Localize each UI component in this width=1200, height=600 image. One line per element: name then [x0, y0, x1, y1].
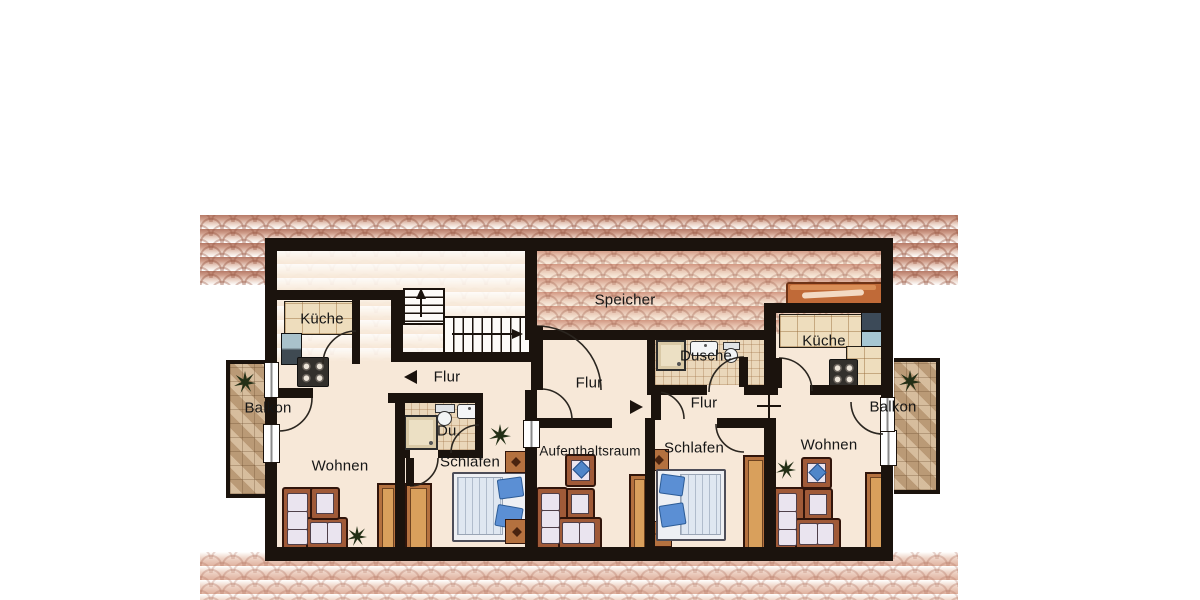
- door-arc-icon: [657, 392, 684, 419]
- room-label-schlafen-left: Schlafen: [440, 455, 500, 470]
- room-label-flur-left: Flur: [434, 370, 461, 385]
- room-label-kueche-left: Küche: [300, 312, 344, 327]
- door-leaf: [774, 358, 782, 388]
- door-leaf: [651, 390, 661, 420]
- door-arc-icon: [541, 389, 572, 420]
- room-label-wohnen-right: Wohnen: [801, 438, 858, 453]
- room-label-speicher: Speicher: [595, 293, 656, 308]
- room-label-aufenthaltsraum: Aufenthaltsraum: [539, 444, 640, 458]
- door-leaf: [739, 357, 748, 387]
- door-leaf: [531, 326, 543, 390]
- arrow-left-icon: [404, 370, 417, 384]
- arrow-right-icon: [512, 329, 523, 339]
- room-label-dusche: Dusche: [680, 349, 732, 364]
- room-label-kueche-right: Küche: [802, 334, 846, 349]
- arrow-up-icon: [416, 288, 426, 299]
- arrow-right-icon: [630, 400, 643, 414]
- room-label-flur-right: Flur: [691, 396, 718, 411]
- door-arc-icon: [410, 458, 438, 486]
- door-leaf: [406, 458, 414, 486]
- room-label-du: Du.: [437, 424, 461, 439]
- room-label-schlafen-middle: Schlafen: [664, 441, 724, 456]
- room-label-balkon-left: Balkon: [244, 401, 291, 416]
- room-label-wohnen-left: Wohnen: [312, 459, 369, 474]
- door-arc-icon: [779, 358, 812, 391]
- room-label-balkon-right: Balkon: [869, 400, 916, 415]
- door-arc-icon: [323, 331, 356, 364]
- room-label-flur-middle: Flur: [576, 376, 603, 391]
- floor-plan: Küche Balkon Flur Wohnen Du. Schlafen Sp…: [0, 0, 1200, 600]
